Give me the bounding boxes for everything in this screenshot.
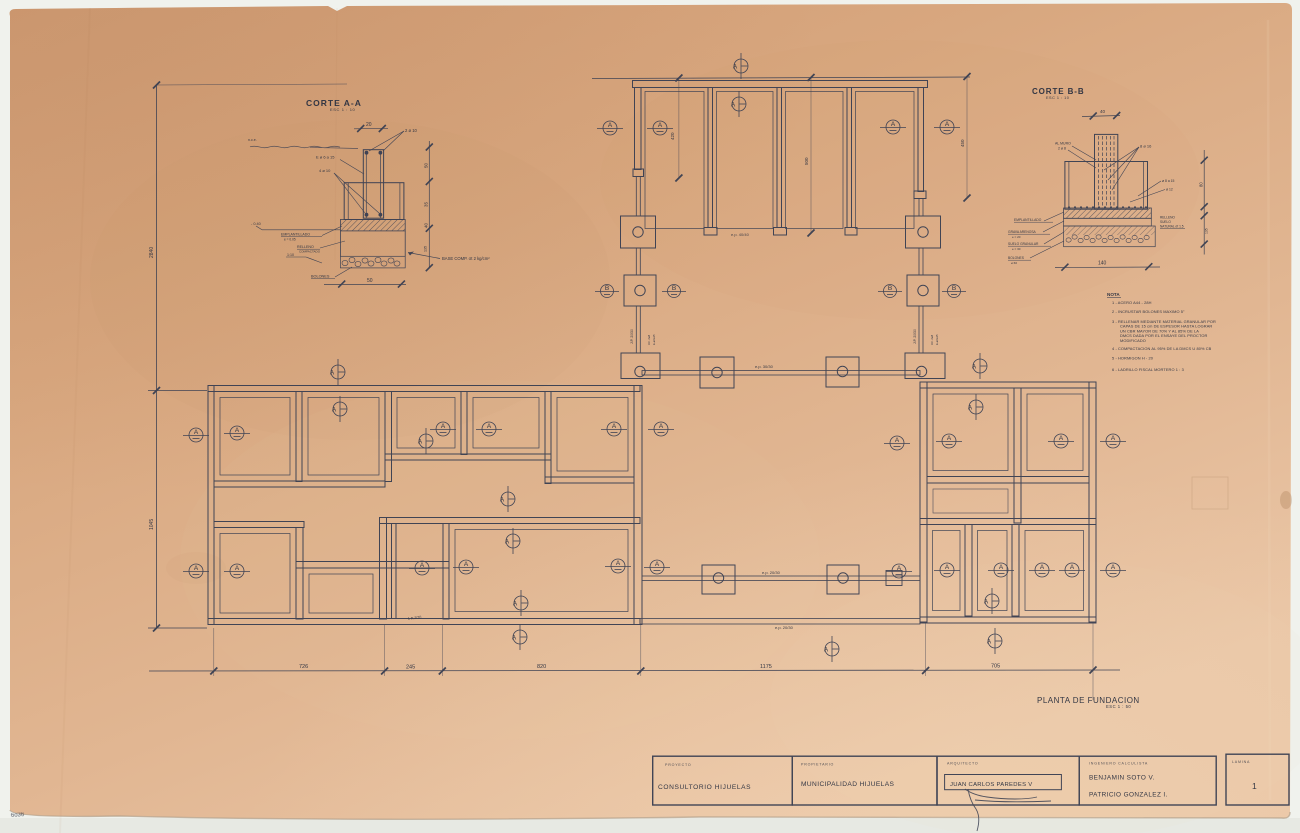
svg-text:PATRICIO GONZALEZ I.: PATRICIO GONZALEZ I.: [1089, 792, 1168, 799]
svg-text:e = 0.05: e = 0.05: [284, 238, 296, 242]
svg-text:50: 50: [367, 278, 373, 284]
svg-text:JUAN CARLOS PAREDES V: JUAN CARLOS PAREDES V: [950, 782, 1032, 788]
svg-text:705: 705: [991, 664, 1000, 670]
svg-text:245: 245: [406, 665, 415, 671]
svg-text:CONSULTORIO HIJUELAS: CONSULTORIO HIJUELAS: [658, 784, 751, 791]
svg-text:NOTA: NOTA: [1107, 292, 1120, 297]
svg-text:EMPLANTILLADO: EMPLANTILLADO: [1014, 218, 1042, 222]
svg-text:BOLONES: BOLONES: [1008, 256, 1025, 260]
svg-text:BOLONES: BOLONES: [311, 275, 330, 279]
svg-text:6o36: 6o36: [11, 812, 25, 819]
svg-text:50: 50: [424, 163, 429, 168]
svg-text:SUELO: SUELO: [1160, 220, 1171, 224]
svg-text:820: 820: [537, 664, 546, 670]
svg-text:RELLENO: RELLENO: [297, 245, 314, 249]
svg-text:ARQUITECTO: ARQUITECTO: [947, 762, 979, 766]
svg-text:1045: 1045: [149, 519, 155, 530]
svg-text:e = 30: e = 30: [1012, 247, 1021, 251]
svg-text:2 ø 8: 2 ø 8: [1058, 147, 1066, 151]
svg-text:2 ø 10: 2 ø 10: [405, 128, 418, 133]
svg-text:NATURAL σt 1.5: NATURAL σt 1.5: [1160, 225, 1184, 229]
svg-text:2840: 2840: [149, 247, 155, 258]
svg-text:ESC 1 : 50: ESC 1 : 50: [1106, 704, 1131, 709]
svg-text:135: 135: [1205, 228, 1209, 234]
svg-text:35: 35: [424, 202, 429, 207]
svg-text:E.ø6a15: E.ø6a15: [935, 334, 939, 345]
svg-text:420: 420: [670, 132, 675, 140]
svg-text:V.F. 2ø8: V.F. 2ø8: [647, 334, 651, 345]
svg-text:4 - COMPACTACION AL 95% D: 4 - COMPACTACION AL 95% DE LA DMCS U 80%…: [1112, 346, 1212, 351]
svg-text:e.p. 30/30: e.p. 30/30: [755, 364, 774, 369]
svg-text:ø 60: ø 60: [1011, 261, 1017, 265]
svg-text:500: 500: [804, 157, 809, 165]
svg-text:AL MURO: AL MURO: [1055, 142, 1071, 146]
svg-text:- 0.40: - 0.40: [251, 222, 261, 226]
svg-text:e.p. 20/30: e.p. 20/30: [762, 570, 781, 575]
svg-text:RELLENO: RELLENO: [1160, 216, 1175, 220]
svg-text:V.F. 2ø8: V.F. 2ø8: [930, 334, 934, 345]
svg-text:E.ø6a15: E.ø6a15: [652, 334, 656, 345]
svg-text:e.p. 20/30: e.p. 20/30: [775, 625, 794, 630]
svg-text:SUELO GRANULAR: SUELO GRANULAR: [1008, 242, 1039, 246]
svg-text:8 ø 16: 8 ø 16: [1140, 144, 1152, 149]
svg-text:40: 40: [424, 223, 429, 228]
svg-text:EMPLANTILLADO: EMPLANTILLADO: [281, 233, 310, 237]
svg-text:PROPIETARIO: PROPIETARIO: [801, 763, 834, 767]
svg-text:PROYECTO: PROYECTO: [665, 763, 692, 767]
svg-text:BENJAMIN SOTO V.: BENJAMIN SOTO V.: [1089, 775, 1155, 782]
svg-text:MODIFICADO: MODIFICADO: [1120, 338, 1146, 343]
svg-text:1: 1: [1252, 781, 1257, 791]
svg-text:40: 40: [1100, 109, 1106, 114]
svg-text:450: 450: [960, 139, 965, 147]
svg-text:5 - HORMIGON H - 20: 5 - HORMIGON H - 20: [1112, 356, 1154, 361]
svg-text:MUNICIPALIDAD HIJUELAS: MUNICIPALIDAD HIJUELAS: [801, 781, 895, 788]
svg-text:e.p. 40/40: e.p. 40/40: [731, 232, 750, 237]
svg-text:1:10: 1:10: [287, 253, 294, 257]
svg-text:GRAVA ARENOSA: GRAVA ARENOSA: [1008, 230, 1037, 234]
svg-text:ESC 1 : 10: ESC 1 : 10: [330, 107, 356, 112]
svg-text:6 - LADRILLO FISCAL MORTER: 6 - LADRILLO FISCAL MORTERO 1 : 3: [1112, 367, 1184, 372]
svg-text:n.c.e.: n.c.e.: [248, 138, 257, 142]
svg-text:LAMINA: LAMINA: [1232, 760, 1250, 764]
svg-text:COMPACTADO: COMPACTADO: [299, 250, 321, 254]
svg-text:J.P. 20/30: J.P. 20/30: [630, 329, 634, 344]
svg-text:726: 726: [299, 664, 308, 670]
svg-text:80: 80: [1199, 182, 1204, 187]
svg-text:ESC 1 : 10: ESC 1 : 10: [1046, 96, 1069, 100]
svg-text:2 - INCRUSTAR BOLONES MAXI: 2 - INCRUSTAR BOLONES MAXIMO 5": [1112, 309, 1185, 314]
svg-text:1 - ACERO A44 - 28H: 1 - ACERO A44 - 28H: [1112, 300, 1152, 305]
svg-text:CORTE B-B: CORTE B-B: [1032, 87, 1085, 96]
svg-text:ø 12: ø 12: [1166, 188, 1173, 192]
svg-text:20: 20: [366, 122, 372, 128]
svg-text:ø 8 a 15: ø 8 a 15: [1162, 179, 1175, 183]
svg-text:E ø 6 a 15: E ø 6 a 15: [316, 155, 335, 160]
svg-text:4 ø 10: 4 ø 10: [319, 168, 331, 173]
svg-text:BASE COMP. σt 2 kg/cm²: BASE COMP. σt 2 kg/cm²: [442, 256, 490, 261]
svg-text:140: 140: [1098, 261, 1107, 267]
svg-text:INGENIERO CALCULISTA: INGENIERO CALCULISTA: [1089, 762, 1148, 766]
svg-text:e = 20: e = 20: [1012, 235, 1021, 239]
svg-text:1175: 1175: [760, 664, 772, 670]
svg-text:J.P. 20/30: J.P. 20/30: [913, 329, 917, 344]
svg-text:135: 135: [424, 246, 428, 252]
